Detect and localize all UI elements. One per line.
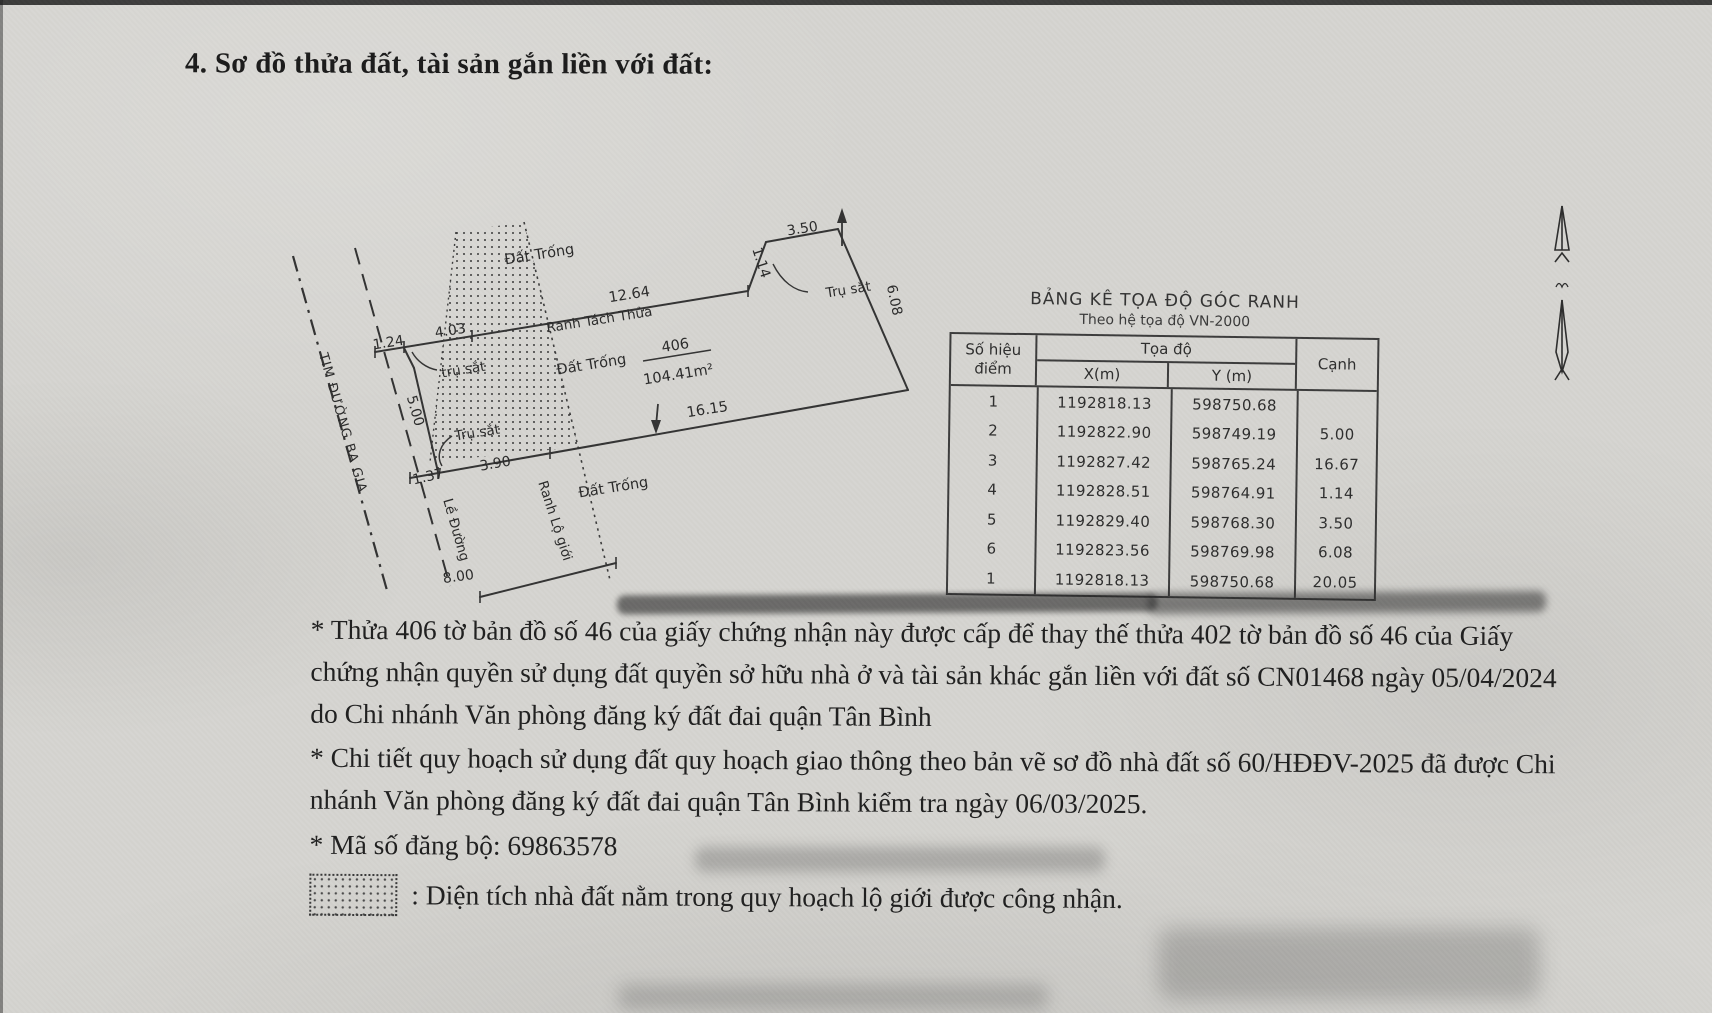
header-y: Y (m) (1169, 363, 1295, 389)
legend-row: : Diện tích nhà đất nằm trong quy hoạch … (309, 874, 1561, 923)
label-ranh-tach-thua: Ranh Tách Thửa (545, 304, 653, 337)
north-arrow-icon (1555, 206, 1569, 380)
scanned-document-page: 4. Sơ đồ thửa đất, tài sản gắn liền với … (0, 0, 1712, 1013)
notes-section: * Thửa 406 tờ bản đồ số 46 của giấy chứn… (309, 609, 1563, 922)
point-cell: 1 (950, 386, 1036, 417)
x-cell: 1192827.42 (1038, 446, 1170, 477)
measure-8-00: 8.00 (442, 567, 475, 587)
edge-cell: 20.05 (1296, 571, 1374, 592)
fence-connector (404, 348, 414, 368)
x-cell: 1192828.51 (1037, 476, 1169, 507)
label-dat-trong-mid: Đất Trống (555, 351, 627, 379)
y-cell: 598764.91 (1171, 478, 1295, 509)
column-y-coords: 598750.68 598749.19 598765.24 598764.91 … (1170, 389, 1299, 598)
coordinate-table: Số hiệu điểm Tọa độ X(m) Y (m) Cạnh 1 2 … (946, 332, 1380, 601)
point-cell: 4 (949, 475, 1035, 506)
header-point-number: Số hiệu điểm (951, 334, 1038, 385)
point-cell: 6 (948, 534, 1034, 565)
table-body: 1 2 3 4 5 6 1 1192818.13 1192822.90 1192… (948, 386, 1377, 599)
coordinate-table-section: BẢNG KÊ TỌA ĐỘ GÓC RANH Theo hệ tọa độ V… (946, 288, 1380, 601)
measure-3-90: 3.90 (479, 453, 512, 474)
header-coordinates: Tọa độ (1037, 335, 1295, 365)
parcel-area: 104.41m² (642, 362, 714, 389)
arrow-up-icon (837, 208, 847, 246)
measure-5-00: 5.00 (403, 394, 427, 428)
x-cell: 1192818.13 (1036, 564, 1168, 595)
label-le-duong: Lề Đường (439, 496, 473, 563)
y-cell: 598769.98 (1170, 537, 1294, 568)
x-cell: 1192818.13 (1038, 387, 1170, 418)
y-cell: 598768.30 (1171, 507, 1295, 538)
point-cell: 2 (950, 416, 1036, 447)
label-dat-trong-bottom: Đất Trống (577, 474, 649, 502)
point-cell: 3 (950, 445, 1036, 476)
point-cell: 5 (949, 504, 1035, 535)
edge-cell: 5.00 (1298, 424, 1376, 445)
point-cell: 1 (948, 563, 1034, 594)
coordinate-table-subtitle: Theo hệ tọa độ VN-2000 (950, 310, 1380, 332)
y-cell: 598750.68 (1172, 389, 1296, 420)
measure-3-50: 3.50 (786, 219, 819, 240)
x-cell: 1192822.90 (1038, 417, 1170, 448)
column-x-coords: 1192818.13 1192822.90 1192827.42 1192828… (1036, 387, 1173, 596)
table-header: Số hiệu điểm Tọa độ X(m) Y (m) Cạnh (951, 334, 1378, 392)
edge-cell: 6.08 (1296, 542, 1374, 563)
y-cell: 598749.19 (1172, 419, 1296, 450)
edge-cell: 16.67 (1298, 453, 1376, 474)
edge-cell: 3.50 (1297, 512, 1375, 533)
y-cell: 598765.24 (1172, 448, 1296, 479)
measure-6-08: 6.08 (883, 283, 905, 317)
header-coordinates-group: Tọa độ X(m) Y (m) (1037, 335, 1298, 389)
y-cell: 598750.68 (1170, 566, 1294, 597)
label-tru-sat-right: Trụ sắt (824, 278, 872, 302)
parcel-number: 406 (660, 336, 690, 356)
legend-text: : Diện tích nhà đất nằm trong quy hoạch … (411, 874, 1123, 920)
label-ranh-lo-gioi: Ranh Lộ giới (534, 479, 575, 563)
note-registration-number: * Mã số đăng bộ: 69863578 (309, 824, 1561, 872)
leader-line (773, 264, 808, 292)
measure-12-64: 12.64 (608, 284, 652, 306)
header-x: X(m) (1037, 361, 1169, 387)
measure-1-24: 1.24 (372, 333, 405, 354)
measure-1-14: 1.14 (748, 245, 773, 280)
leader-line (412, 352, 437, 370)
note-replacement: * Thửa 406 tờ bản đồ số 46 của giấy chứn… (310, 609, 1563, 741)
note-planning: * Chi tiết quy hoạch sử dụng đất quy hoạ… (310, 737, 1562, 827)
column-edge-lengths: 5.00 16.67 1.14 3.50 6.08 20.05 (1296, 391, 1377, 599)
column-point-numbers: 1 2 3 4 5 6 1 (948, 386, 1039, 594)
dotted-area-swatch-icon (309, 874, 397, 916)
header-edge: Cạnh (1297, 339, 1378, 390)
boundary-back (480, 563, 616, 597)
x-cell: 1192829.40 (1037, 505, 1169, 536)
edge-cell: 1.14 (1297, 483, 1375, 504)
x-cell: 1192823.56 (1036, 535, 1168, 566)
measure-16-15: 16.15 (686, 399, 730, 421)
label-tim-duong: TIM ĐƯỜNG BA GIA (315, 350, 371, 495)
arrow-down-icon (651, 404, 661, 434)
